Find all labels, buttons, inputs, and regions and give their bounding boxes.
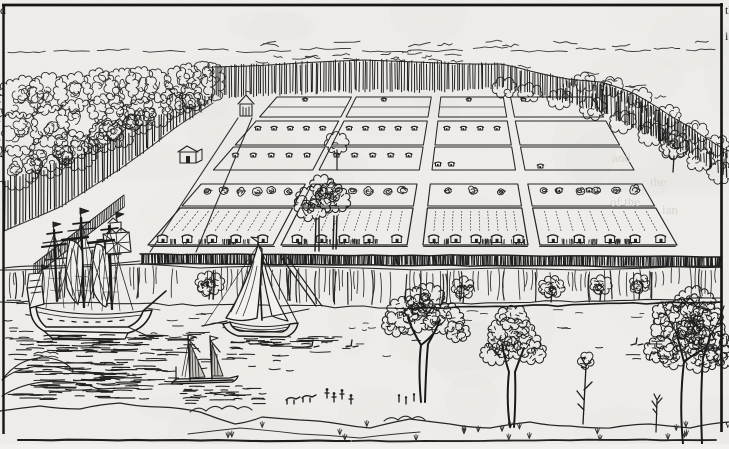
svg-text:d: d: [0, 3, 6, 17]
svg-text:th: th: [725, 3, 729, 17]
svg-text:w: w: [725, 417, 729, 431]
